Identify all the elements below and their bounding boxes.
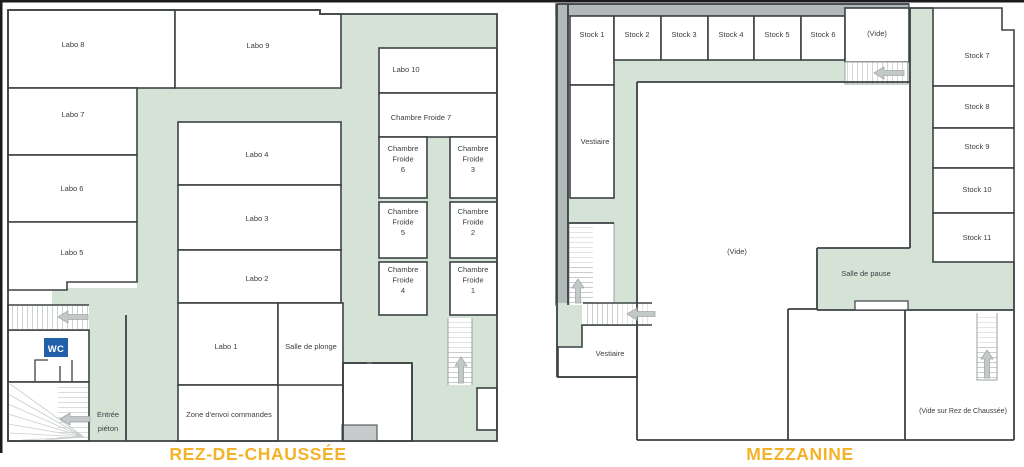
label-vestiaire-upper: Vestiaire	[581, 137, 610, 146]
label-labo-8: Labo 8	[62, 40, 85, 49]
door-opening	[855, 301, 908, 310]
label-vestiaire-lower: Vestiaire	[596, 349, 625, 358]
corridor-between-chambres	[427, 137, 450, 315]
green-block-left	[556, 303, 582, 347]
wc-badge-label: WC	[48, 344, 64, 355]
label-stock-5: Stock 5	[764, 30, 789, 39]
title-rez-de-chaussee: REZ-DE-CHAUSSÉE	[169, 443, 346, 464]
label-stock-1: Stock 1	[579, 30, 604, 39]
label-labo-5: Labo 5	[61, 248, 84, 257]
label-labo-2: Labo 2	[246, 274, 269, 283]
plan-rez-de-chaussee: WC Labo 8 Labo 9 Labo 7 Labo 6 Labo 5 La…	[8, 10, 497, 464]
label-chambre-froide-7: Chambre Froide 7	[391, 113, 451, 122]
label-stock-2: Stock 2	[624, 30, 649, 39]
label-labo-9: Labo 9	[247, 41, 270, 50]
room-stock-7	[933, 8, 1014, 86]
label-stock-3: Stock 3	[671, 30, 696, 39]
label-labo-7: Labo 7	[62, 110, 85, 119]
corridor-top-right	[379, 14, 497, 48]
corridor-entrance	[89, 305, 137, 442]
label-labo-10: Labo 10	[392, 65, 419, 74]
title-mezzanine: MEZZANINE	[746, 444, 853, 464]
corridor-central	[137, 88, 178, 442]
label-stock-4: Stock 4	[718, 30, 743, 39]
plan-mezzanine: Stock 1 Stock 2 Stock 3 Stock 4 Stock 5 …	[556, 4, 1014, 464]
label-stock-8: Stock 8	[964, 102, 989, 111]
label-stock-9: Stock 9	[964, 142, 989, 151]
label-vide-top: (Vide)	[867, 29, 887, 38]
label-labo-6: Labo 6	[61, 184, 84, 193]
alcove-bottom-right	[477, 388, 497, 430]
label-zone-envoi: Zone d'envoi commandes	[186, 410, 272, 419]
label-labo-3: Labo 3	[246, 214, 269, 223]
room-labo-7	[8, 88, 137, 155]
corridor-right	[910, 8, 933, 262]
wc-sign: WC	[44, 338, 68, 357]
label-vide-center: (Vide)	[727, 247, 747, 256]
label-labo-1: Labo 1	[215, 342, 238, 351]
equipment-box	[342, 425, 377, 441]
floor-plan-canvas: WC Labo 8 Labo 9 Labo 7 Labo 6 Labo 5 La…	[0, 0, 1024, 467]
corridor-top-band	[178, 88, 341, 122]
corridor-left	[614, 60, 637, 325]
label-salle-de-pause: Salle de pause	[841, 269, 891, 278]
corridor-bottom-mid	[379, 315, 412, 363]
room-stock-1	[570, 16, 614, 85]
left-edge-line	[0, 0, 3, 453]
corridor-right-band	[341, 14, 379, 363]
green-under-vestiaire	[568, 198, 614, 223]
label-stock-6: Stock 6	[810, 30, 835, 39]
room-labo-8	[8, 10, 175, 88]
label-stock-11: Stock 11	[963, 233, 992, 242]
label-vide-sur-rdc: (Vide sur Rez de Chaussée)	[919, 408, 1007, 415]
label-stock-7: Stock 7	[964, 51, 989, 60]
label-salle-de-plonge: Salle de plonge	[285, 342, 337, 351]
label-labo-4: Labo 4	[246, 150, 269, 159]
label-stock-10: Stock 10	[962, 185, 991, 194]
top-edge-line	[0, 0, 1024, 3]
